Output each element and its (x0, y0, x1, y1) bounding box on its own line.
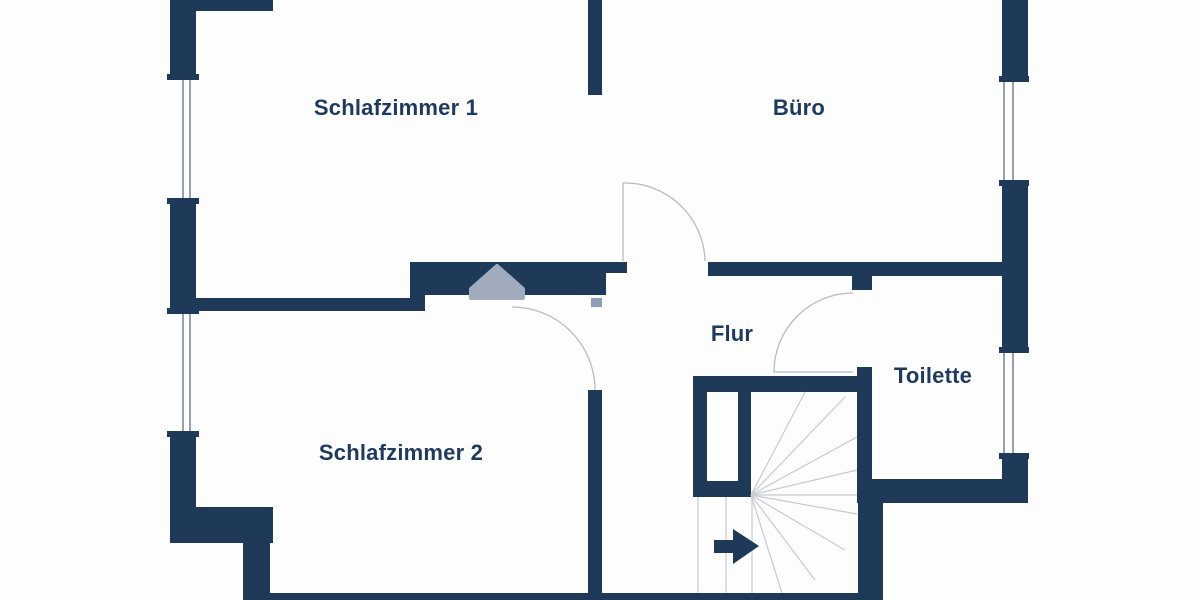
schlafzimmer-2-door-swing-arc (512, 307, 595, 390)
floorplan-drawing (0, 0, 1200, 600)
wall-segment (170, 431, 196, 511)
wall-segment (588, 0, 602, 95)
stair-tread-line (751, 437, 857, 495)
wall-segment (999, 453, 1029, 459)
wall-segment (999, 76, 1029, 82)
toilette-door-swing-arc (774, 293, 853, 372)
floorplan-canvas: Schlafzimmer 1 Büro Flur Toilette Schlaf… (0, 0, 1200, 600)
wall-segment (167, 74, 199, 80)
room-label-flur: Flur (711, 321, 753, 347)
stair-tread-line (751, 470, 857, 495)
room-label-schlafzimmer-2: Schlafzimmer 2 (319, 440, 483, 466)
wall-segment (857, 367, 872, 503)
wall-segment (170, 0, 196, 80)
wall-segment (693, 376, 707, 497)
wall-segment (243, 543, 270, 600)
room-label-toilette: Toilette (894, 363, 972, 389)
wall-segment (167, 308, 199, 314)
wall-segment (263, 593, 883, 600)
wall-segment (170, 198, 196, 314)
room-label-buero: Büro (773, 95, 825, 121)
wall-segment (606, 262, 627, 273)
wall-segment (167, 431, 199, 437)
wall-segment (693, 376, 857, 392)
wall-segment (170, 507, 273, 543)
wall-segment (852, 273, 872, 290)
stair-tread-line (751, 495, 815, 580)
wall-segment (693, 481, 751, 497)
wall-segment (195, 298, 425, 311)
door-hinge-marker (591, 298, 602, 307)
wall-segment (999, 347, 1029, 353)
wall-segment (738, 390, 751, 497)
wall-segment (858, 503, 883, 600)
wall-segment (1002, 0, 1028, 82)
wall-segment (588, 390, 602, 600)
wall-segment (999, 180, 1029, 186)
wall-segment (1002, 180, 1028, 353)
stair-tread-line (751, 397, 845, 495)
wall-segment (858, 479, 1028, 503)
buero-door-swing-arc (623, 183, 705, 261)
wall-segment (167, 198, 199, 204)
room-label-schlafzimmer-1: Schlafzimmer 1 (314, 95, 478, 121)
